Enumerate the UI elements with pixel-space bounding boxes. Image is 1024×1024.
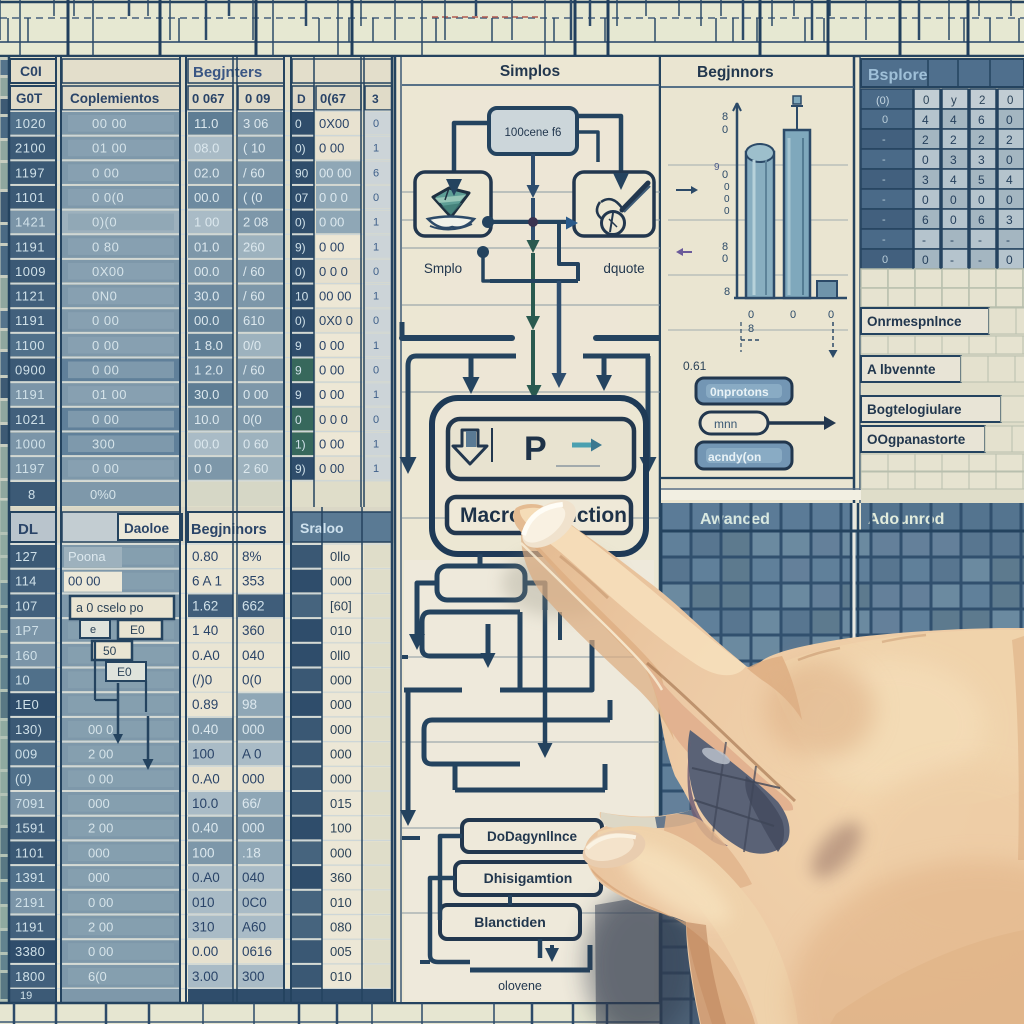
svg-text:127: 127 [15, 549, 38, 564]
svg-text:0%0: 0%0 [90, 487, 116, 502]
svg-text:0 00: 0 00 [319, 436, 344, 451]
svg-text:0: 0 [722, 169, 728, 181]
svg-text:1020: 1020 [15, 116, 46, 131]
svg-text:000: 000 [330, 747, 352, 762]
svg-text:0 00: 0 00 [88, 895, 113, 910]
svg-text:19: 19 [20, 990, 32, 1002]
svg-text:3: 3 [978, 153, 985, 167]
svg-text:4: 4 [1006, 173, 1013, 187]
svg-text:0 067: 0 067 [192, 91, 225, 106]
svg-text:000: 000 [88, 796, 110, 811]
svg-text:0.40: 0.40 [192, 821, 218, 836]
svg-text:10.0: 10.0 [194, 412, 219, 427]
svg-text:1 8.0: 1 8.0 [194, 338, 223, 353]
svg-text:10: 10 [295, 290, 309, 304]
svg-text:1121: 1121 [15, 289, 45, 304]
svg-text:000: 000 [242, 722, 265, 737]
svg-text:4: 4 [922, 113, 929, 127]
svg-text:0 00: 0 00 [92, 165, 119, 180]
svg-text:-: - [978, 233, 982, 247]
svg-text:Coplemientos: Coplemientos [70, 91, 159, 106]
svg-text:00 00: 00 00 [68, 574, 101, 589]
svg-text:1: 1 [373, 389, 379, 401]
svg-text:3.00: 3.00 [192, 969, 218, 984]
svg-text:1021: 1021 [15, 412, 46, 427]
svg-text:4: 4 [950, 113, 957, 127]
svg-text:E0: E0 [130, 623, 145, 637]
svg-text:010: 010 [330, 969, 352, 984]
svg-text:100cene f6: 100cene f6 [505, 127, 562, 139]
svg-text:1E0: 1E0 [15, 697, 39, 712]
svg-text:0: 0 [724, 182, 730, 193]
svg-text:1421: 1421 [15, 215, 46, 230]
svg-text:3: 3 [372, 92, 379, 106]
svg-text:300: 300 [242, 969, 265, 984]
svg-text:8: 8 [748, 323, 754, 335]
svg-text:0: 0 [1006, 153, 1013, 167]
svg-text:0 0 0: 0 0 0 [319, 412, 348, 427]
svg-text:acndy(on: acndy(on [708, 450, 761, 464]
svg-text:0 0: 0 0 [194, 461, 212, 476]
svg-text:0 00: 0 00 [88, 944, 113, 959]
svg-text:0): 0) [295, 314, 306, 328]
svg-text:9): 9) [295, 462, 306, 476]
svg-text:3: 3 [1006, 213, 1013, 227]
svg-text:0: 0 [724, 206, 730, 217]
svg-text:0/0: 0/0 [243, 338, 261, 353]
svg-text:3380: 3380 [15, 944, 45, 959]
svg-text:A 0: A 0 [242, 747, 262, 762]
svg-text:000: 000 [330, 673, 352, 688]
svg-text:0: 0 [295, 117, 302, 131]
svg-text:0: 0 [882, 114, 888, 126]
svg-text:1391: 1391 [15, 870, 45, 885]
svg-text:0: 0 [373, 315, 379, 327]
svg-text:360: 360 [330, 870, 352, 885]
svg-text:130): 130) [15, 722, 42, 737]
svg-text:300: 300 [92, 436, 115, 451]
svg-text:000: 000 [330, 697, 352, 712]
svg-text:1: 1 [373, 463, 379, 475]
svg-text:0.A0: 0.A0 [192, 771, 220, 786]
svg-text:Begjnters: Begjnters [193, 64, 262, 81]
svg-text:3 06: 3 06 [243, 116, 268, 131]
svg-text:0: 0 [828, 309, 834, 321]
svg-text:2 00: 2 00 [88, 920, 113, 935]
svg-text:mnn: mnn [714, 417, 737, 431]
svg-text:000: 000 [88, 845, 110, 860]
svg-text:0llo: 0llo [330, 549, 350, 564]
svg-text:0 00: 0 00 [319, 338, 344, 353]
svg-text:0: 0 [1007, 95, 1013, 107]
svg-text:A lbvennte: A lbvennte [867, 362, 936, 377]
svg-text:8: 8 [722, 241, 728, 253]
svg-text:-: - [882, 134, 886, 146]
svg-text:30.0: 30.0 [194, 289, 219, 304]
svg-text:2: 2 [979, 95, 985, 107]
svg-text:2: 2 [950, 133, 957, 147]
svg-text:08.0: 08.0 [194, 141, 219, 156]
svg-text:01 00: 01 00 [92, 141, 127, 156]
svg-text:00.0: 00.0 [194, 264, 219, 279]
svg-text:0 00: 0 00 [243, 387, 268, 402]
svg-text:0.00: 0.00 [192, 944, 218, 959]
svg-text:-: - [922, 233, 926, 247]
svg-text:0)(0: 0)(0 [92, 215, 117, 230]
svg-text:0): 0) [295, 142, 306, 156]
svg-text:0 00: 0 00 [319, 363, 344, 378]
svg-text:260: 260 [243, 239, 265, 254]
svg-text:1 40: 1 40 [192, 623, 218, 638]
svg-text:-: - [882, 174, 886, 186]
svg-text:-: - [882, 194, 886, 206]
svg-text:Poona: Poona [68, 549, 106, 564]
svg-text:0: 0 [373, 365, 379, 377]
svg-text:1: 1 [373, 143, 379, 155]
svg-text:2: 2 [978, 133, 985, 147]
svg-text:-: - [882, 234, 886, 246]
svg-text:2 00: 2 00 [88, 747, 113, 762]
svg-text:1591: 1591 [15, 821, 45, 836]
svg-text:00.0: 00.0 [194, 313, 219, 328]
svg-text:00 0: 00 0 [88, 722, 113, 737]
svg-text:/ 60: / 60 [243, 165, 265, 180]
svg-text:Simplos: Simplos [500, 63, 560, 80]
svg-text:10.0: 10.0 [192, 796, 218, 811]
svg-text:01.0: 01.0 [194, 239, 219, 254]
svg-text:0: 0 [1006, 113, 1013, 127]
svg-text:0.A0: 0.A0 [192, 648, 220, 663]
svg-text:015: 015 [330, 796, 352, 811]
svg-text:[60]: [60] [330, 598, 352, 613]
svg-text:e: e [90, 624, 96, 636]
svg-text:8%: 8% [242, 549, 262, 564]
svg-text:Daoloe: Daoloe [124, 521, 170, 536]
svg-text:Adounrod: Adounrod [868, 511, 944, 528]
svg-text:100: 100 [330, 821, 352, 836]
svg-text:6(0: 6(0 [88, 969, 107, 984]
svg-text:/ 60: / 60 [243, 264, 265, 279]
svg-text:0 09: 0 09 [245, 91, 270, 106]
svg-text:1: 1 [373, 340, 379, 352]
svg-text:02.0: 02.0 [194, 165, 219, 180]
svg-text:160: 160 [15, 648, 38, 663]
svg-text:1: 1 [373, 241, 379, 253]
svg-text:0.61: 0.61 [683, 359, 707, 373]
svg-text:-: - [1006, 233, 1010, 247]
svg-text:9): 9) [295, 240, 306, 254]
svg-text:010: 010 [330, 623, 352, 638]
svg-text:2191: 2191 [15, 895, 45, 910]
svg-text:0nprotons: 0nprotons [710, 385, 769, 399]
svg-text:00 00: 00 00 [319, 165, 352, 180]
svg-text:009: 009 [15, 747, 38, 762]
svg-text:0: 0 [922, 153, 929, 167]
svg-text:010: 010 [192, 895, 215, 910]
svg-text:005: 005 [330, 944, 352, 959]
svg-text:00 00: 00 00 [319, 289, 352, 304]
svg-text:0 0 0: 0 0 0 [319, 264, 348, 279]
svg-text:Bsplore: Bsplore [868, 67, 928, 84]
svg-text:0 00: 0 00 [319, 387, 344, 402]
svg-text:8: 8 [28, 487, 35, 502]
svg-text:0 0 0: 0 0 0 [319, 190, 348, 205]
svg-text:0: 0 [373, 192, 379, 204]
svg-text:000: 000 [330, 722, 352, 737]
svg-text:1: 1 [373, 291, 379, 303]
svg-text:-: - [882, 214, 886, 226]
svg-text:662: 662 [242, 598, 265, 613]
svg-text:0: 0 [724, 194, 730, 205]
svg-text:0: 0 [790, 309, 796, 321]
svg-text:360: 360 [242, 623, 265, 638]
svg-text:98: 98 [242, 697, 257, 712]
svg-text:0.A0: 0.A0 [192, 870, 220, 885]
svg-text:0X00: 0X00 [92, 264, 124, 279]
svg-text:1100: 1100 [15, 338, 45, 353]
svg-text:0(0: 0(0 [242, 673, 262, 688]
svg-text:( (0: ( (0 [243, 190, 263, 205]
svg-text:DoDagynllnce: DoDagynllnce [487, 829, 578, 844]
svg-text:0: 0 [950, 193, 957, 207]
svg-text:0(0: 0(0 [243, 412, 262, 427]
svg-text:Begjninors: Begjninors [191, 522, 267, 538]
svg-text:DL: DL [18, 521, 38, 538]
svg-text:0 00: 0 00 [92, 313, 119, 328]
svg-text:0: 0 [722, 124, 728, 136]
svg-text:100: 100 [192, 747, 215, 762]
svg-text:Awanced: Awanced [700, 511, 770, 528]
svg-text:0: 0 [882, 254, 888, 266]
svg-text:6: 6 [978, 213, 985, 227]
svg-text:1197: 1197 [15, 165, 45, 180]
svg-text:9: 9 [295, 339, 302, 353]
svg-text:6: 6 [922, 213, 929, 227]
svg-text:/ 60: / 60 [243, 289, 265, 304]
svg-text:0 60: 0 60 [243, 436, 268, 451]
svg-text:9: 9 [295, 364, 302, 378]
svg-text:OOgpanastorte: OOgpanastorte [867, 432, 966, 447]
svg-text:1000: 1000 [15, 436, 46, 451]
svg-text:0X00: 0X00 [319, 116, 349, 131]
svg-text:0 00: 0 00 [92, 461, 119, 476]
svg-text:4: 4 [950, 173, 957, 187]
svg-text:6: 6 [978, 113, 985, 127]
svg-text:.18: .18 [242, 845, 261, 860]
svg-text:1191: 1191 [15, 920, 44, 935]
svg-text:0: 0 [1006, 253, 1013, 267]
svg-text:2 60: 2 60 [243, 461, 268, 476]
svg-text:0: 0 [922, 253, 929, 267]
svg-text:353: 353 [242, 574, 265, 589]
svg-text:0900: 0900 [15, 363, 46, 378]
svg-text:040: 040 [242, 870, 265, 885]
svg-text:1P7: 1P7 [15, 623, 39, 638]
svg-text:1101: 1101 [15, 190, 45, 205]
svg-text:1 2.0: 1 2.0 [194, 363, 223, 378]
svg-text:Dhisigamtion: Dhisigamtion [484, 870, 573, 886]
svg-text:310: 310 [192, 920, 215, 935]
svg-text:(/)0: (/)0 [192, 673, 212, 688]
svg-text:000: 000 [242, 771, 265, 786]
svg-text:2: 2 [1006, 133, 1013, 147]
svg-text:0): 0) [295, 216, 306, 230]
svg-text:-: - [978, 253, 982, 267]
svg-text:10: 10 [15, 673, 30, 688]
svg-text:5: 5 [978, 173, 985, 187]
svg-text:0: 0 [748, 309, 754, 321]
svg-text:0): 0) [295, 265, 306, 279]
svg-text:/ 60: / 60 [243, 363, 265, 378]
svg-text:8: 8 [722, 111, 728, 123]
svg-text:1101: 1101 [15, 845, 44, 860]
svg-text:00 00: 00 00 [92, 116, 127, 131]
svg-text:0X0 0: 0X0 0 [319, 313, 353, 328]
svg-text:P: P [524, 430, 547, 468]
svg-text:dquote: dquote [603, 261, 644, 276]
svg-text:E0: E0 [117, 665, 132, 679]
svg-text:0 00: 0 00 [92, 338, 119, 353]
svg-text:610: 610 [243, 313, 265, 328]
svg-text:6: 6 [373, 167, 379, 179]
svg-text:0(67: 0(67 [320, 91, 346, 106]
svg-text:9: 9 [714, 162, 720, 173]
svg-text:0 0(0: 0 0(0 [92, 190, 124, 205]
svg-text:2 00: 2 00 [88, 821, 113, 836]
svg-text:0C0: 0C0 [242, 895, 267, 910]
svg-text:1): 1) [295, 437, 306, 451]
svg-text:6 A 1: 6 A 1 [192, 574, 222, 589]
svg-text:1 00: 1 00 [194, 215, 219, 230]
svg-text:0.89: 0.89 [192, 697, 218, 712]
svg-text:1197: 1197 [15, 461, 45, 476]
svg-text:010: 010 [330, 895, 352, 910]
svg-text:1: 1 [373, 438, 379, 450]
svg-text:50: 50 [103, 644, 117, 658]
svg-text:0ll0: 0ll0 [330, 648, 350, 663]
svg-text:0: 0 [922, 193, 929, 207]
svg-text:000: 000 [88, 870, 110, 885]
svg-text:0 00: 0 00 [319, 461, 344, 476]
svg-text:9: 9 [295, 388, 302, 402]
svg-text:01 00: 01 00 [92, 387, 127, 402]
svg-text:11.0: 11.0 [194, 116, 218, 131]
svg-text:0: 0 [923, 95, 929, 107]
svg-text:a 0 cselo po: a 0 cselo po [76, 601, 143, 615]
svg-text:(0): (0) [876, 95, 889, 107]
svg-text:2 08: 2 08 [243, 215, 268, 230]
svg-text:Blanctiden: Blanctiden [474, 914, 546, 930]
svg-text:1191: 1191 [15, 387, 45, 402]
svg-text:7091: 7091 [15, 796, 45, 811]
svg-text:000: 000 [330, 574, 352, 589]
svg-text:0: 0 [978, 193, 985, 207]
svg-text:0: 0 [373, 266, 379, 278]
svg-text:0: 0 [722, 253, 728, 265]
svg-text:0 00: 0 00 [92, 412, 119, 427]
svg-text:100: 100 [192, 845, 215, 860]
svg-text:y: y [951, 95, 957, 107]
svg-text:0: 0 [950, 213, 957, 227]
svg-text:00.0: 00.0 [194, 190, 219, 205]
svg-text:080: 080 [330, 920, 352, 935]
svg-text:3: 3 [950, 153, 957, 167]
svg-text:000: 000 [330, 771, 352, 786]
svg-text:114: 114 [15, 574, 37, 589]
svg-text:000: 000 [242, 821, 265, 836]
svg-text:-: - [882, 154, 886, 166]
svg-text:000: 000 [330, 845, 352, 860]
svg-text:07: 07 [295, 191, 309, 205]
svg-text:1: 1 [373, 217, 379, 229]
svg-text:2100: 2100 [15, 141, 46, 156]
svg-text:8: 8 [724, 286, 730, 298]
svg-text:0 00: 0 00 [319, 141, 344, 156]
svg-text:3: 3 [922, 173, 929, 187]
svg-text:( 10: ( 10 [243, 141, 265, 156]
svg-text:107: 107 [15, 598, 38, 613]
svg-text:90: 90 [295, 166, 309, 180]
svg-text:0.40: 0.40 [192, 722, 218, 737]
svg-text:olovene: olovene [498, 979, 542, 993]
svg-text:0: 0 [373, 414, 379, 426]
svg-text:0.80: 0.80 [192, 549, 218, 564]
svg-text:1191: 1191 [15, 313, 45, 328]
svg-text:0 80: 0 80 [92, 239, 119, 254]
svg-text:66/: 66/ [242, 796, 261, 811]
svg-text:040: 040 [242, 648, 265, 663]
svg-text:0616: 0616 [242, 944, 272, 959]
svg-text:00.0: 00.0 [194, 436, 219, 451]
svg-text:0 00: 0 00 [88, 771, 113, 786]
svg-text:0N0: 0N0 [92, 289, 117, 304]
svg-text:-: - [950, 233, 954, 247]
svg-text:Begjnnors: Begjnnors [697, 64, 774, 81]
svg-text:Bogtelogiulare: Bogtelogiulare [867, 402, 962, 417]
svg-text:1.62: 1.62 [192, 598, 218, 613]
svg-text:C0I: C0I [20, 63, 42, 79]
svg-text:0 00: 0 00 [92, 363, 119, 378]
svg-text:1191: 1191 [15, 239, 45, 254]
svg-text:1800: 1800 [15, 969, 45, 984]
svg-text:0 00: 0 00 [319, 215, 344, 230]
svg-text:2: 2 [922, 133, 929, 147]
svg-text:A60: A60 [242, 920, 266, 935]
svg-text:D: D [297, 92, 306, 106]
svg-text:0: 0 [295, 413, 302, 427]
svg-text:30.0: 30.0 [194, 387, 219, 402]
svg-text:0 00: 0 00 [319, 239, 344, 254]
svg-text:Onrmespnlnce: Onrmespnlnce [867, 314, 962, 329]
svg-text:1009: 1009 [15, 264, 46, 279]
svg-text:(0): (0) [15, 771, 32, 786]
svg-text:-: - [950, 253, 954, 267]
svg-text:0: 0 [1006, 193, 1013, 207]
svg-text:Smplo: Smplo [424, 261, 462, 276]
svg-text:0: 0 [373, 118, 379, 130]
svg-text:G0T: G0T [16, 91, 43, 106]
